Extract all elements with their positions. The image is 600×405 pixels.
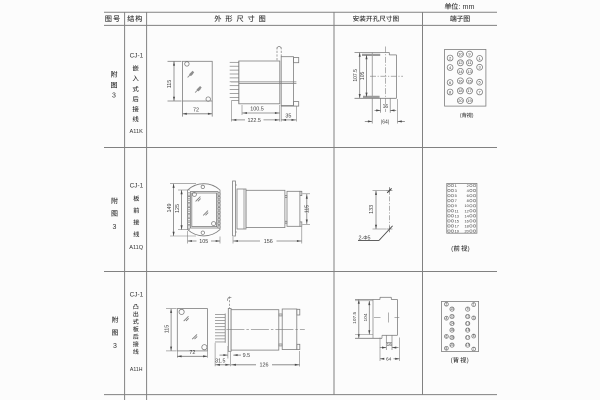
svg-text:): ) <box>472 113 474 119</box>
svg-text:6: 6 <box>446 335 448 339</box>
svg-text:1: 1 <box>473 303 475 307</box>
svg-text:20: 20 <box>450 343 454 347</box>
svg-text:10: 10 <box>450 307 454 311</box>
svg-text:31.5: 31.5 <box>215 359 225 365</box>
svg-text:8: 8 <box>449 89 451 94</box>
svg-text:A11K: A11K <box>130 129 144 135</box>
svg-text:19: 19 <box>466 343 470 347</box>
svg-text:9: 9 <box>468 52 470 57</box>
svg-text:5: 5 <box>473 334 475 338</box>
svg-text:2: 2 <box>446 302 448 306</box>
svg-text:18: 18 <box>450 336 454 340</box>
svg-text:105: 105 <box>199 239 208 245</box>
svg-text:115: 115 <box>167 80 173 89</box>
svg-text:72: 72 <box>193 107 199 113</box>
svg-text:9: 9 <box>467 307 469 311</box>
svg-text:126: 126 <box>260 363 269 369</box>
svg-text:133: 133 <box>369 205 375 214</box>
svg-text:104: 104 <box>363 313 369 321</box>
svg-text:9.5: 9.5 <box>243 353 251 359</box>
svg-text:14: 14 <box>450 322 454 326</box>
svg-text:11: 11 <box>467 60 471 65</box>
svg-text:107.5: 107.5 <box>352 311 358 323</box>
svg-text:12: 12 <box>458 60 462 65</box>
svg-text:A11Q: A11Q <box>129 245 144 251</box>
svg-text:7: 7 <box>473 347 475 351</box>
svg-text:149: 149 <box>167 204 173 213</box>
svg-text:CJ-1: CJ-1 <box>130 182 144 189</box>
svg-text:15: 15 <box>466 328 470 332</box>
svg-text:16: 16 <box>450 328 454 332</box>
svg-text:100.5: 100.5 <box>250 107 264 113</box>
svg-text:72: 72 <box>189 350 195 356</box>
svg-text:122.5: 122.5 <box>247 118 261 124</box>
svg-text:): ) <box>467 357 469 364</box>
svg-text::: : <box>459 4 461 11</box>
svg-text:|64|: |64| <box>381 119 389 125</box>
svg-text:115: 115 <box>164 325 170 334</box>
svg-text:12: 12 <box>450 315 454 319</box>
svg-text:CJ-1: CJ-1 <box>130 291 144 298</box>
svg-text:35: 35 <box>285 113 291 119</box>
svg-text:16: 16 <box>383 104 389 110</box>
svg-text:115: 115 <box>304 205 310 213</box>
svg-text:64: 64 <box>386 357 392 363</box>
svg-text:3: 3 <box>112 93 116 100</box>
svg-text:6: 6 <box>449 80 451 85</box>
svg-text:18: 18 <box>458 88 462 93</box>
svg-text:17: 17 <box>467 88 471 93</box>
svg-text:2-Φ5: 2-Φ5 <box>358 235 370 241</box>
svg-text:19: 19 <box>455 229 459 234</box>
svg-text:8: 8 <box>446 346 448 350</box>
svg-text:1: 1 <box>479 56 481 61</box>
svg-text:2: 2 <box>449 55 451 60</box>
svg-text:107.5: 107.5 <box>353 69 359 82</box>
svg-text:(: ( <box>460 113 462 119</box>
svg-text:3: 3 <box>473 316 475 320</box>
svg-text:156: 156 <box>264 239 273 245</box>
svg-text:3: 3 <box>113 224 117 231</box>
svg-text:16: 16 <box>458 78 462 83</box>
svg-text:CJ-1: CJ-1 <box>130 53 144 60</box>
svg-text:3: 3 <box>113 343 117 350</box>
svg-text:19: 19 <box>467 98 471 103</box>
svg-text:125: 125 <box>175 204 181 213</box>
svg-text:5: 5 <box>479 80 481 85</box>
svg-text:): ) <box>468 246 470 253</box>
svg-text:7: 7 <box>479 89 481 94</box>
svg-text:16: 16 <box>387 342 393 347</box>
svg-text:A11H: A11H <box>130 367 143 373</box>
svg-text:4: 4 <box>446 316 448 320</box>
svg-text:13: 13 <box>467 69 471 74</box>
svg-text:15: 15 <box>467 78 471 83</box>
svg-text:mm: mm <box>463 2 475 11</box>
svg-text:3: 3 <box>479 65 481 70</box>
svg-text:105: 105 <box>360 72 366 81</box>
svg-text:11: 11 <box>466 315 470 319</box>
svg-text:17: 17 <box>466 336 470 340</box>
svg-text:13: 13 <box>466 322 470 326</box>
